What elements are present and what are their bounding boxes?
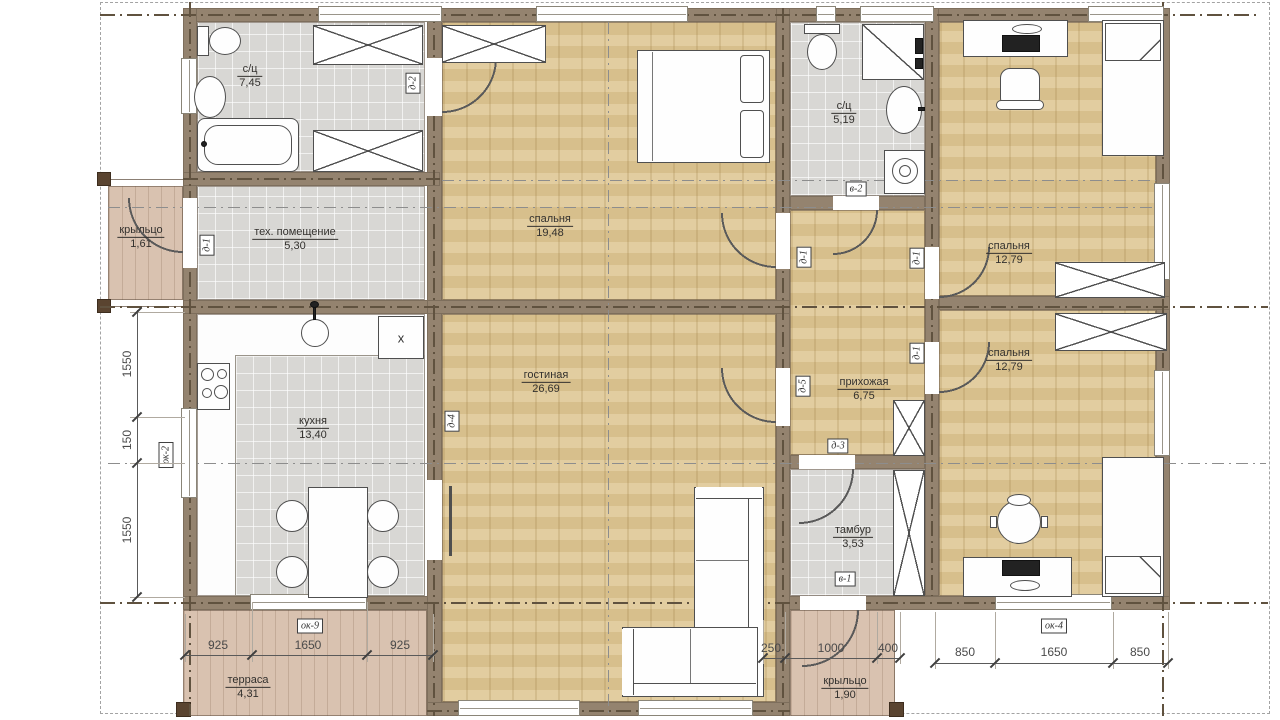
grid-axis: [442, 180, 1156, 181]
window-tag: ок-4: [1041, 619, 1067, 634]
cabinet: [313, 25, 423, 65]
chair: [276, 500, 308, 532]
door-tag: д-1: [910, 342, 925, 363]
room-name: спальня: [986, 240, 1032, 253]
axis-line: [931, 8, 933, 596]
shower-mixer: [915, 58, 923, 69]
dim-value: 1650: [1041, 646, 1068, 658]
printer: [1002, 560, 1040, 576]
door-swing: [939, 342, 991, 394]
sink-tap: [918, 107, 925, 111]
room-name: спальня: [986, 347, 1032, 360]
room-area: 1,61: [117, 237, 164, 251]
room-area: 12,79: [986, 253, 1032, 267]
door-opening: [800, 596, 866, 610]
grid-axis: [108, 463, 1266, 464]
kitchen-tap-knob: [310, 301, 319, 308]
room-area: 19,48: [527, 226, 573, 240]
room-area: 12,79: [986, 360, 1032, 374]
room-area: 7,45: [237, 76, 262, 90]
room-area: 4,31: [225, 687, 270, 701]
window: [318, 6, 442, 22]
door-swing: [720, 368, 776, 424]
kitchen-sink: [301, 319, 329, 347]
door-opening: [925, 342, 939, 394]
armchair-armrest: [990, 516, 997, 528]
window: [536, 6, 688, 22]
wardrobe: [442, 25, 546, 63]
dim-value: 925: [208, 639, 228, 651]
door-leaf: [449, 486, 452, 556]
sofa-cushion-line: [696, 560, 748, 561]
room-name: крыльцо: [117, 224, 164, 237]
dim-line: [137, 310, 138, 598]
door-opening: [776, 213, 790, 269]
porch-bottom-post: [889, 702, 904, 717]
dim-line: [185, 655, 433, 656]
door-opening: [925, 247, 939, 299]
door-opening: [427, 58, 442, 116]
room-name: гостиная: [522, 369, 571, 382]
room-area: 1,90: [821, 688, 868, 702]
stove-burner: [202, 388, 212, 398]
window: [1154, 370, 1170, 456]
chair: [367, 556, 399, 588]
pillow: [1105, 23, 1161, 61]
armchair-headrest: [1007, 494, 1031, 506]
dim-value: 1650: [295, 639, 322, 651]
toilet-bowl: [209, 27, 241, 55]
window-tag: ок-2: [159, 442, 174, 468]
dim-value: 850: [955, 646, 975, 658]
room-area: 26,69: [522, 382, 571, 396]
wardrobe: [1055, 313, 1167, 351]
room-area: 13,40: [297, 428, 329, 442]
porch-post: [97, 172, 111, 186]
dim-value: 1550: [121, 517, 133, 544]
sofa-armrest: [622, 629, 634, 695]
sink: [194, 76, 226, 118]
dim-value: 1550: [121, 351, 133, 378]
room-name: кухня: [297, 415, 329, 428]
chair: [367, 500, 399, 532]
floor-plan: x с/ц 7,45 тех. помещение 5,30: [0, 0, 1280, 720]
pillow: [740, 110, 764, 158]
dim-value: 400: [878, 642, 898, 654]
printer: [1002, 35, 1040, 52]
boiler-label: x: [379, 330, 423, 345]
room-name: тамбур: [833, 524, 873, 537]
door-tag: д-1: [910, 247, 925, 268]
dim-value: 150: [121, 430, 133, 450]
laptop: [1010, 580, 1040, 591]
room-label-terrace: терраса 4,31: [225, 674, 270, 700]
room-area: 5,19: [831, 113, 856, 127]
sofa-armrest: [696, 487, 762, 499]
boiler-box: x: [378, 316, 424, 359]
window-ok2: [181, 408, 197, 498]
dim-line: [935, 663, 1168, 664]
door-opening: [799, 455, 855, 469]
stove-burner: [201, 368, 214, 381]
room-label-bedroom-main: спальня 19,48: [527, 213, 573, 239]
stove-burner: [214, 385, 228, 399]
door-tag: д-2: [406, 72, 421, 93]
door-opening: [427, 480, 442, 560]
room-name: с/ц: [831, 100, 856, 113]
dining-table: [308, 487, 368, 598]
wardrobe: [893, 470, 925, 596]
sofa-cushion-line: [690, 629, 691, 683]
room-label-tambur: тамбур 3,53: [833, 524, 873, 550]
door-swing: [939, 247, 991, 299]
room-label-living: гостиная 26,69: [522, 369, 571, 395]
cabinet: [313, 130, 423, 172]
toilet-bowl: [807, 34, 837, 70]
dim-value: 1000: [818, 642, 845, 654]
room-area: 5,30: [252, 239, 338, 253]
laptop: [1012, 24, 1042, 34]
room-label-hallway: прихожая 6,75: [837, 376, 890, 402]
door-swing: [442, 58, 498, 114]
room-name: крыльцо: [821, 675, 868, 688]
door-swing: [833, 210, 879, 256]
toilet-tank: [804, 24, 840, 34]
window-tag: ок-9: [297, 619, 323, 634]
door-tag: д-5: [796, 375, 811, 396]
door-tag: д-1: [200, 234, 215, 255]
door-tag: в-2: [846, 182, 867, 197]
grid-axis: [608, 22, 609, 714]
sink: [886, 86, 922, 134]
axis-line: [100, 306, 1268, 308]
dim-value: 925: [390, 639, 410, 651]
axis-line: [782, 8, 784, 716]
stove-burner: [217, 369, 227, 379]
door-swing: [720, 213, 776, 269]
room-name: тех. помещение: [252, 226, 338, 239]
door-opening: [183, 198, 197, 268]
window: [816, 6, 836, 22]
window: [458, 700, 580, 716]
door-tag: д-3: [827, 439, 848, 454]
room-label-porch-left: крыльцо 1,61: [117, 224, 164, 250]
room-name: с/ц: [237, 63, 262, 76]
window: [860, 6, 934, 22]
window: [638, 700, 753, 716]
armchair-armrest: [1041, 516, 1048, 528]
room-label-tech: тех. помещение 5,30: [252, 226, 338, 252]
room-label-bathroom2: с/ц 5,19: [831, 100, 856, 126]
door-tag: в-1: [835, 572, 856, 587]
shower-mixer: [915, 38, 923, 54]
washing-machine-drum-inner: [899, 165, 911, 177]
room-label-bedroom-tr: спальня 12,79: [986, 240, 1032, 266]
room-area: 3,53: [833, 537, 873, 551]
door-tag: д-1: [797, 246, 812, 267]
pillow: [1105, 556, 1161, 594]
room-name: терраса: [225, 674, 270, 687]
chair: [276, 556, 308, 588]
dim-value: 850: [1130, 646, 1150, 658]
armchair-seat: [997, 500, 1041, 544]
room-name: прихожая: [837, 376, 890, 389]
blanket-line: [652, 52, 653, 161]
sofa-backrest: [624, 683, 756, 695]
door-opening: [776, 368, 790, 426]
office-chair-back: [996, 100, 1044, 110]
door-opening: [833, 196, 879, 210]
room-label-kitchen: кухня 13,40: [297, 415, 329, 441]
bathtub-faucet: [201, 141, 207, 147]
bathtub-inner: [204, 125, 292, 165]
room-label-bedroom-br: спальня 12,79: [986, 347, 1032, 373]
door-swing: [802, 610, 860, 668]
room-label-bathroom1: с/ц 7,45: [237, 63, 262, 89]
pillow: [740, 55, 764, 103]
toilet-tank: [197, 26, 209, 56]
door-tag: д-4: [445, 410, 460, 431]
grid-axis: [108, 207, 1156, 208]
wardrobe: [893, 400, 925, 456]
door-swing: [799, 469, 855, 525]
room-label-porch-bottom: крыльцо 1,90: [821, 675, 868, 701]
axis-line: [183, 178, 440, 180]
room-area: 6,75: [837, 389, 890, 403]
room-name: спальня: [527, 213, 573, 226]
dim-value: 250: [761, 642, 781, 654]
wardrobe: [1055, 262, 1165, 298]
